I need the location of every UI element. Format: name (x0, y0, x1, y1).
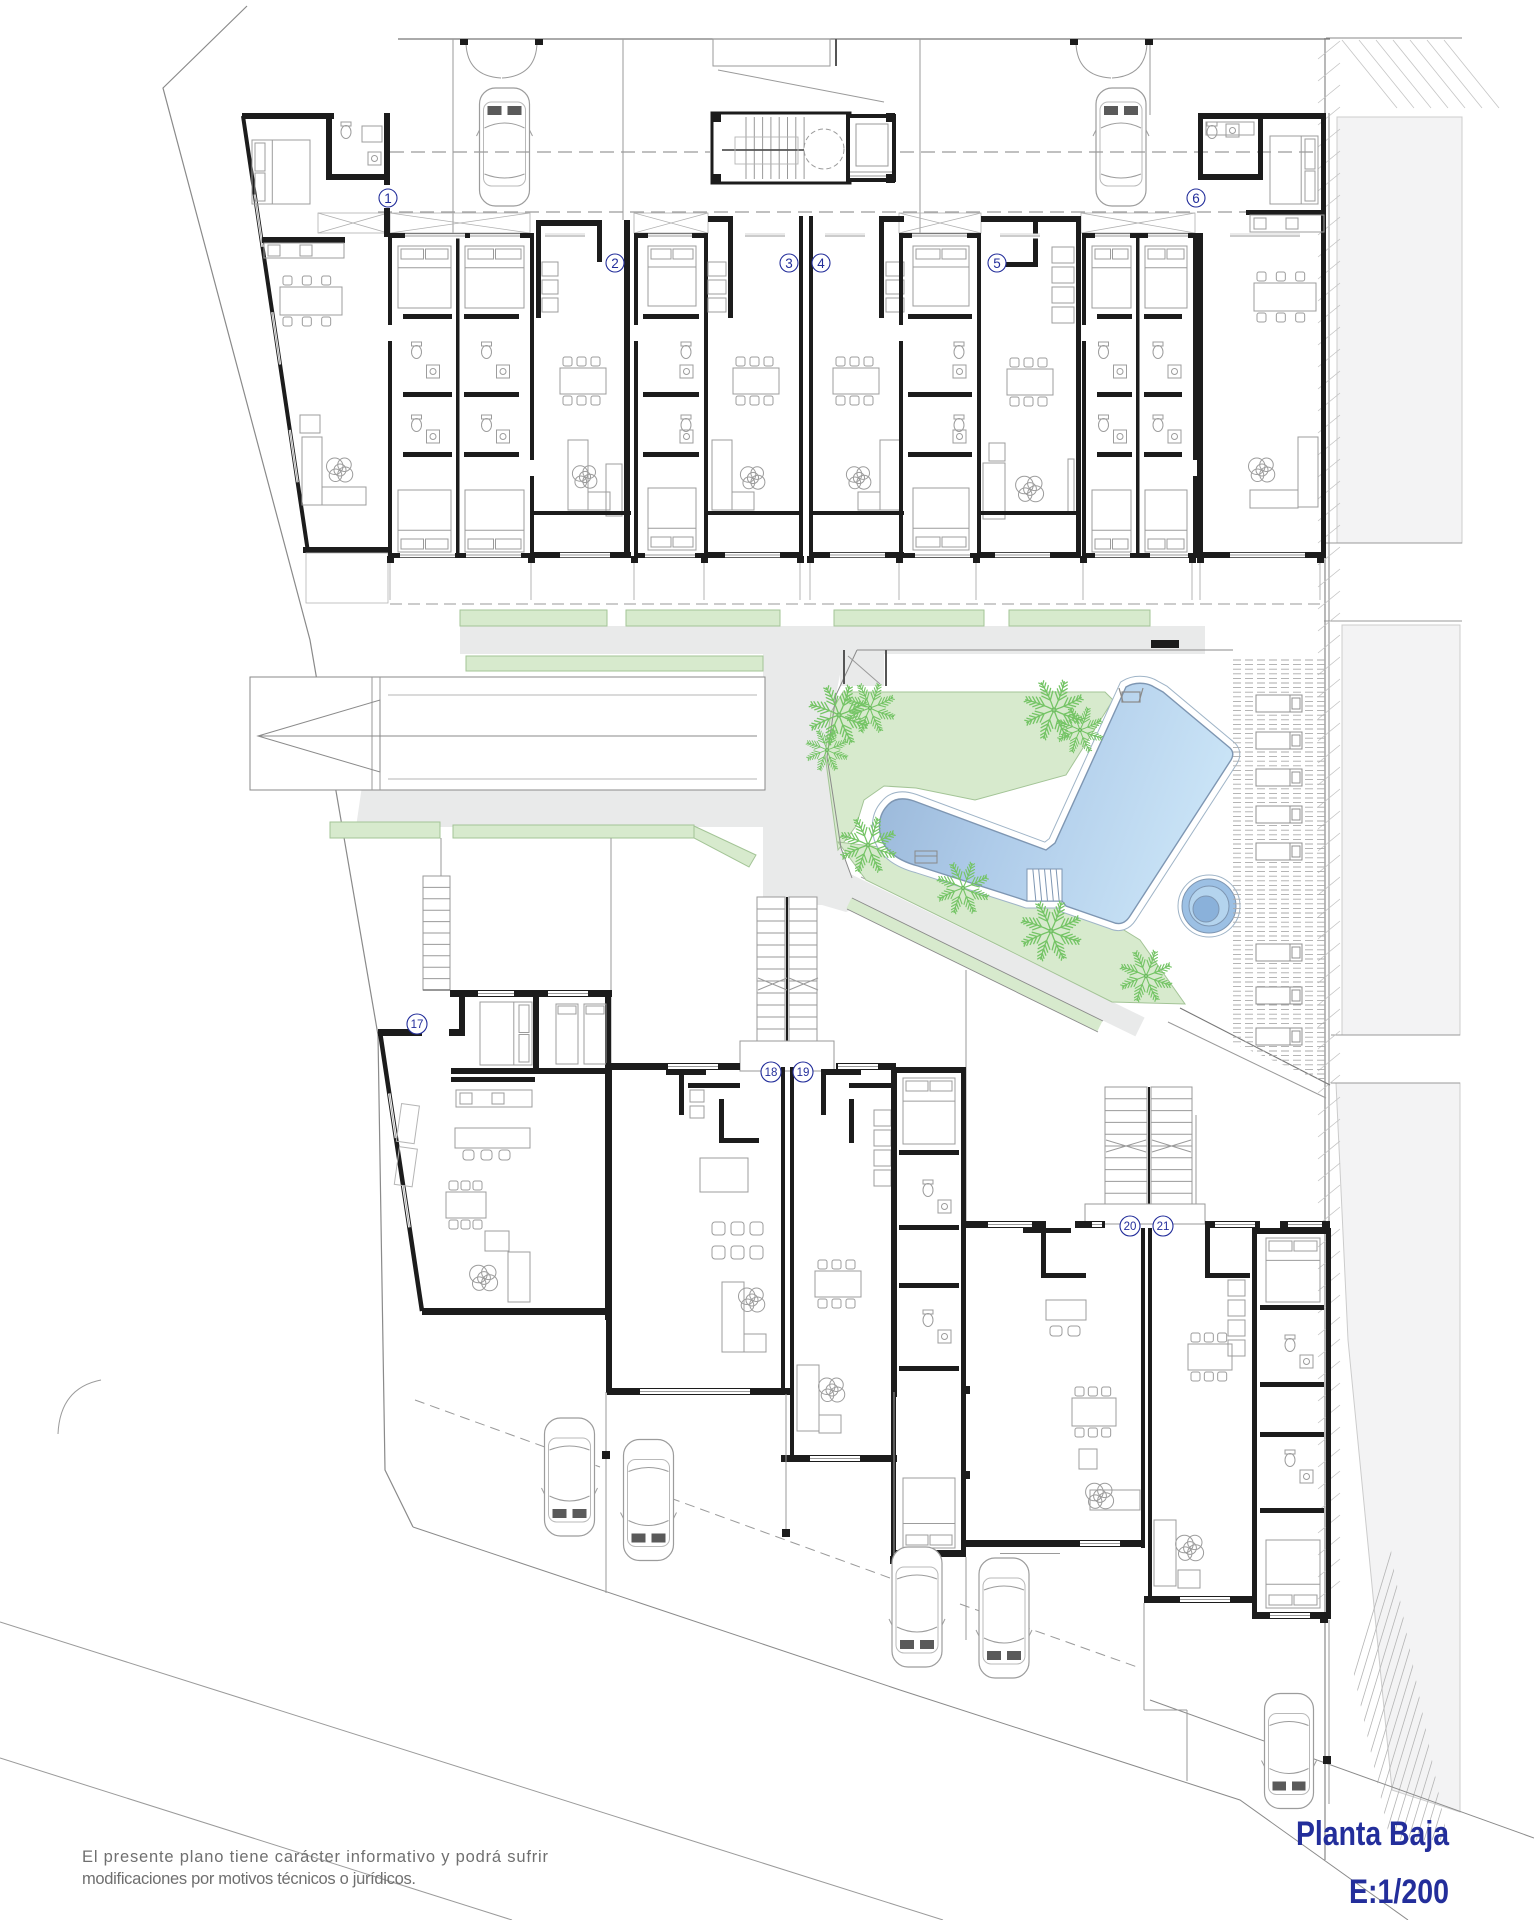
svg-text:5: 5 (993, 256, 1001, 271)
svg-text:19: 19 (797, 1067, 810, 1079)
svg-text:Planta Baja: Planta Baja (1296, 1815, 1450, 1853)
svg-text:6: 6 (1192, 191, 1200, 206)
svg-text:1: 1 (384, 191, 392, 206)
svg-text:modificaciones por motivos téc: modificaciones por motivos técnicos o ju… (82, 1870, 416, 1888)
svg-text:17: 17 (411, 1019, 424, 1031)
svg-text:21: 21 (1157, 1221, 1170, 1233)
svg-text:3: 3 (785, 256, 793, 271)
svg-text:2: 2 (611, 256, 619, 271)
svg-text:E:1/200: E:1/200 (1349, 1873, 1449, 1911)
svg-text:18: 18 (765, 1067, 778, 1079)
svg-text:El presente plano tiene caráct: El presente plano tiene carácter informa… (82, 1848, 549, 1866)
svg-text:4: 4 (817, 256, 825, 271)
svg-text:20: 20 (1124, 1221, 1137, 1233)
